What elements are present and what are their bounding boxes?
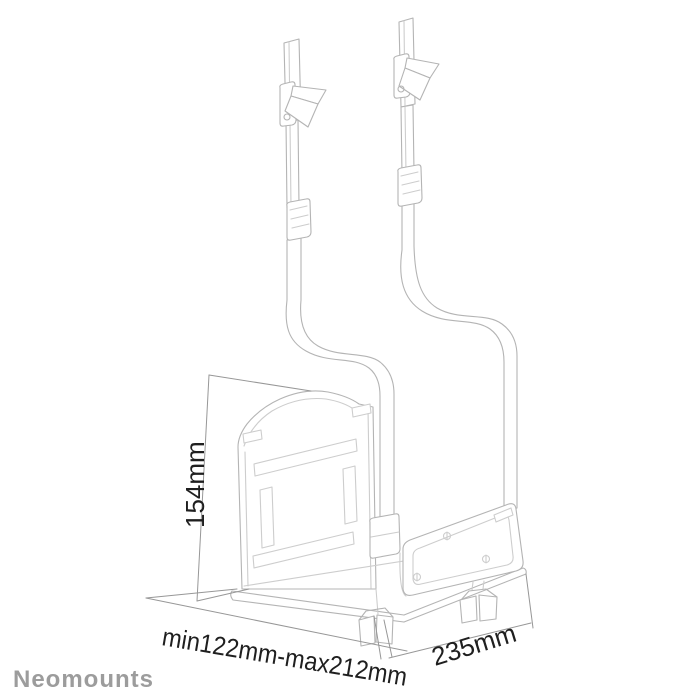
depth-label: 235mm bbox=[428, 618, 520, 672]
right-strap-slider bbox=[398, 165, 422, 206]
right-strap-band bbox=[401, 202, 517, 512]
extension-line bbox=[146, 589, 237, 598]
brand-logo: Neomounts bbox=[13, 666, 154, 693]
holder-body bbox=[231, 391, 526, 622]
left-strap-upper bbox=[286, 120, 299, 208]
product-diagram: 154mm min122mm-max212mm 235mm Neomounts bbox=[0, 0, 700, 700]
extension-line bbox=[209, 375, 311, 391]
panel-slot bbox=[260, 487, 274, 548]
cpu-holder-line-drawing: 154mm min122mm-max212mm 235mm Neomounts bbox=[0, 0, 700, 700]
left-strap-slider bbox=[287, 199, 311, 240]
right-strap bbox=[394, 18, 517, 512]
panel-slot bbox=[343, 466, 357, 524]
height-label: 154mm bbox=[180, 441, 210, 528]
extension-line bbox=[526, 574, 533, 628]
right-strap-upper bbox=[401, 105, 414, 174]
